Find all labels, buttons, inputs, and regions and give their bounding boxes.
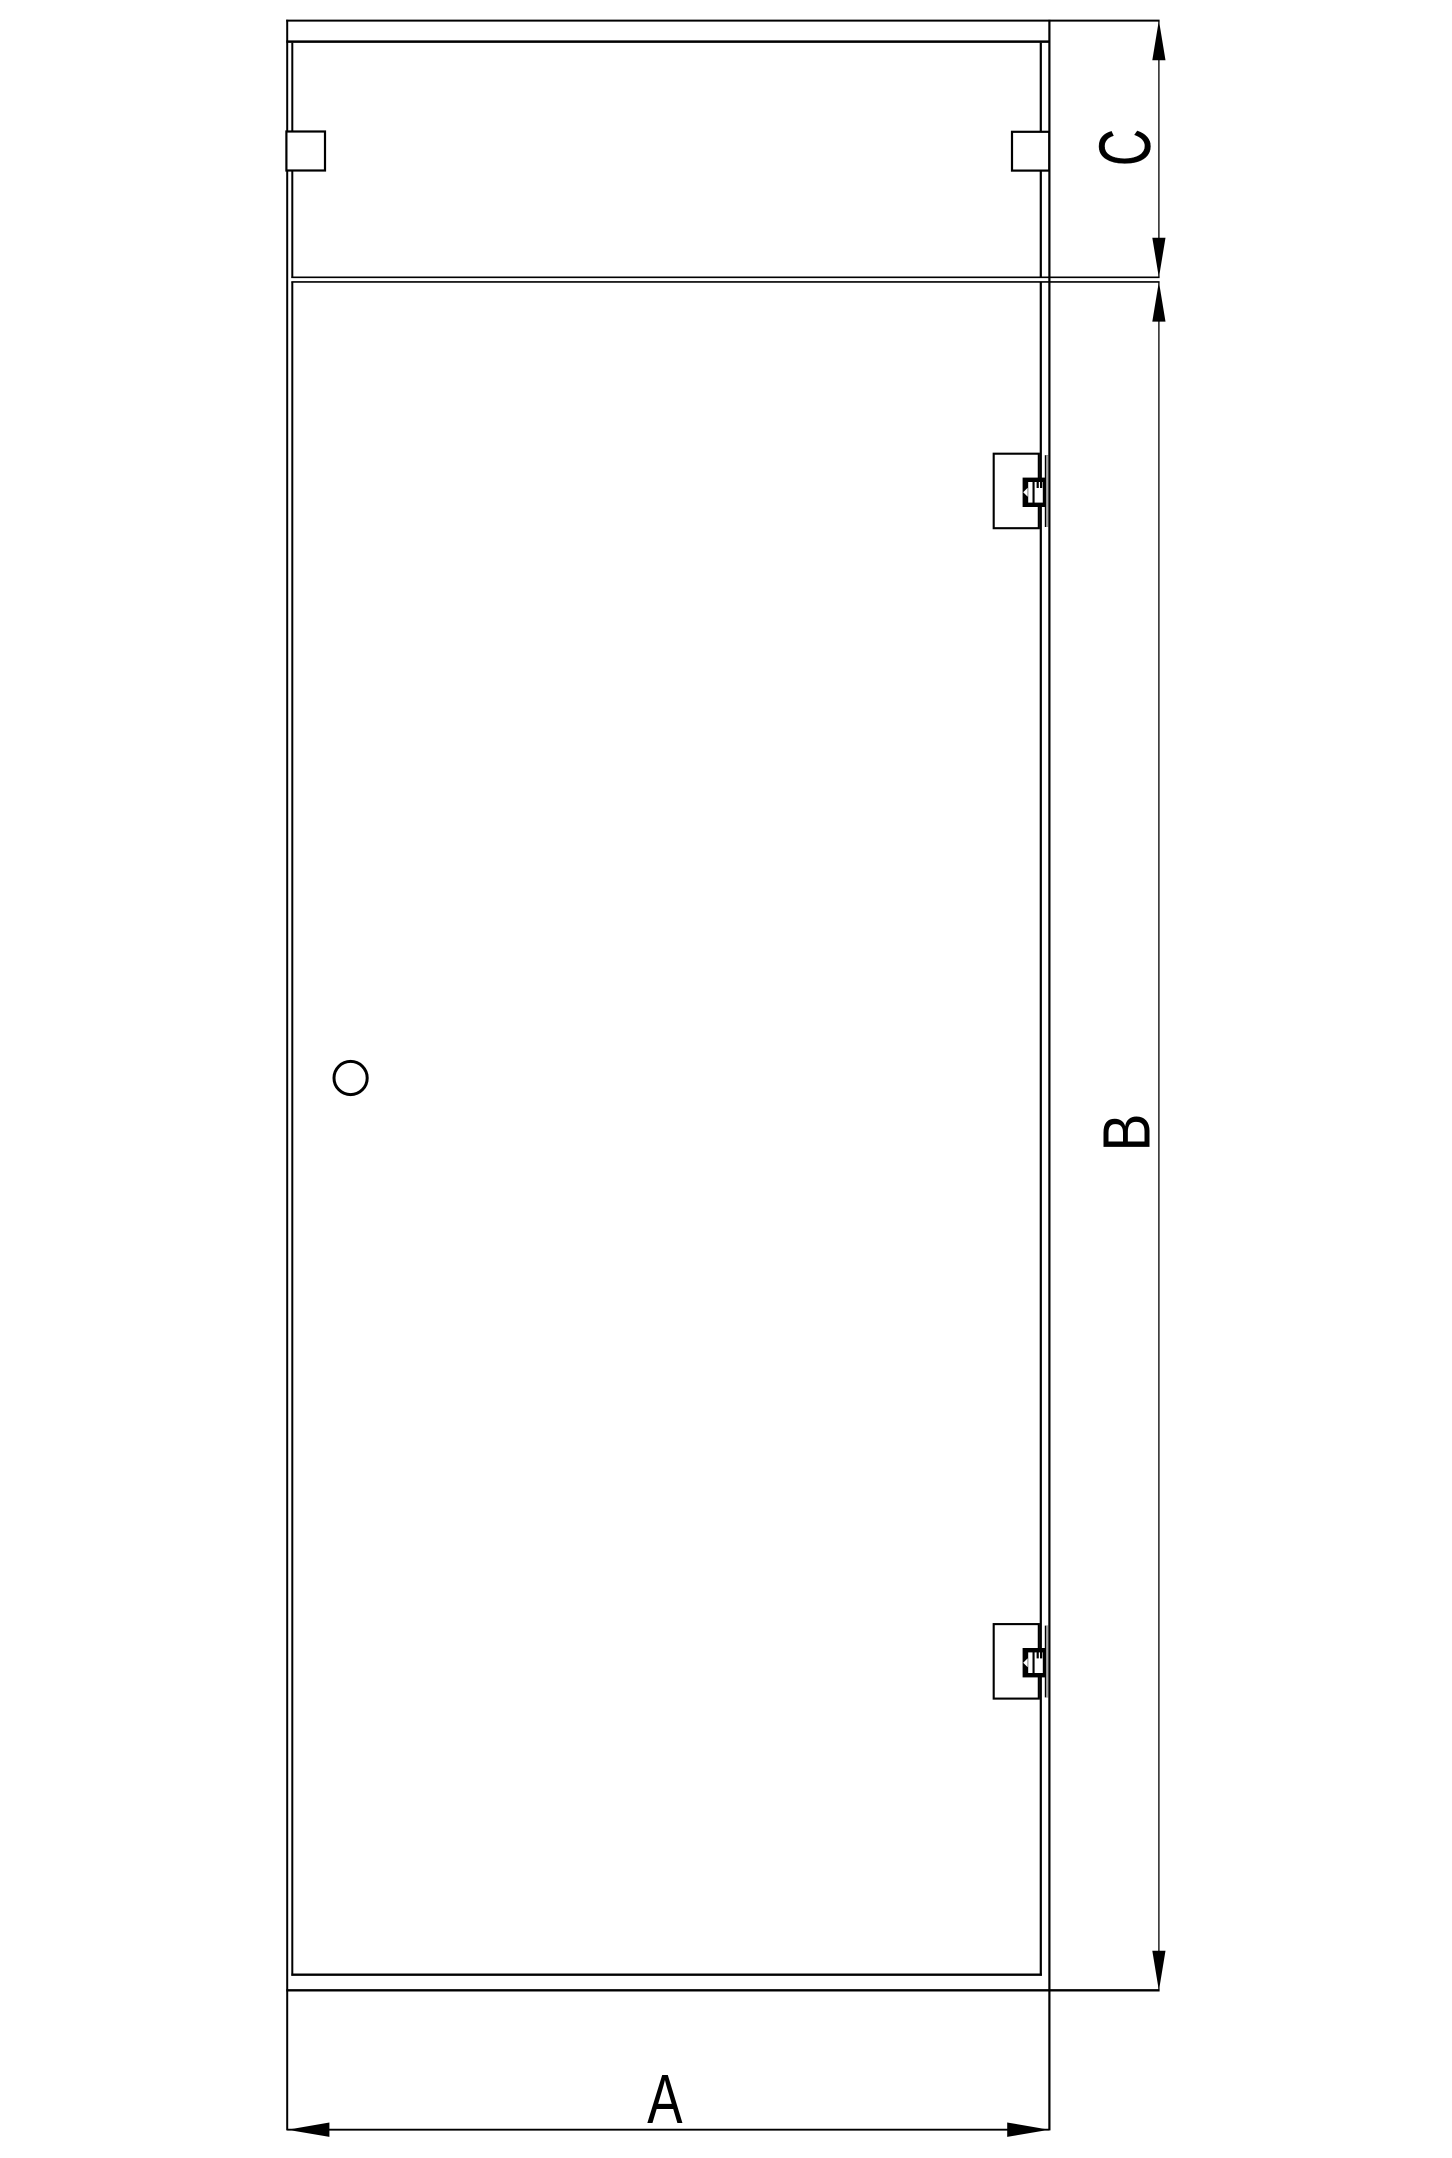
svg-text:C: C — [1085, 129, 1166, 166]
svg-text:A: A — [647, 2061, 683, 2139]
svg-text:B: B — [1090, 1114, 1164, 1152]
